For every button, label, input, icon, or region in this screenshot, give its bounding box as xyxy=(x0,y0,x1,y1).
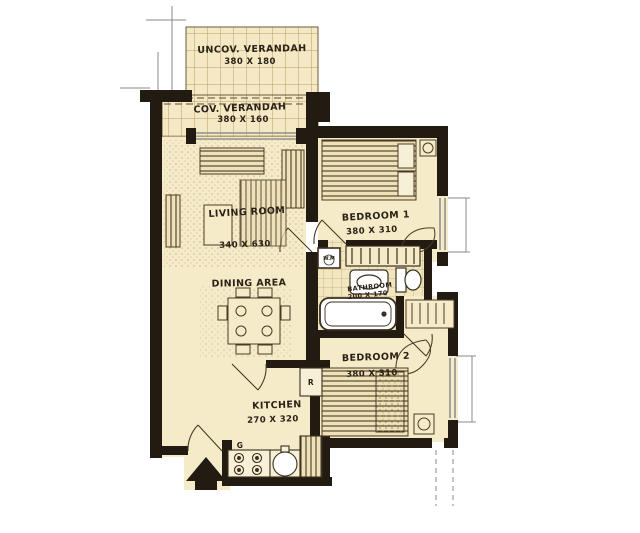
wall-entry-left xyxy=(150,446,188,455)
bedroom1-side-table xyxy=(420,140,436,156)
wall-kitchen-top xyxy=(266,360,330,368)
living-room-dims: 340 X 630 xyxy=(219,239,271,251)
bathtub xyxy=(320,298,396,330)
kitchen-label: KITCHEN xyxy=(252,399,302,412)
bedroom1-pillow xyxy=(398,144,414,168)
dining-chair xyxy=(258,288,272,297)
toilet xyxy=(396,268,421,292)
dining-chair xyxy=(236,288,250,297)
bedroom1-pillow xyxy=(398,172,414,196)
dining-furniture xyxy=(218,288,290,354)
wall-living-post-left xyxy=(186,128,196,144)
dining-chair xyxy=(258,345,272,354)
bedroom2-pillow-area xyxy=(376,372,404,432)
uncov-verandah-dims: 380 X 180 xyxy=(224,57,276,67)
dining-chair xyxy=(218,306,227,320)
wall-bedroom2-bottom-b xyxy=(444,438,458,448)
dining-area-label: DINING AREA xyxy=(211,277,286,289)
washing-machine-label: W.M xyxy=(323,256,335,262)
bedroom2-dims: 380 X 310 xyxy=(346,368,398,380)
kitchen-sink xyxy=(270,446,300,477)
wall-bathroom-bedroom2 xyxy=(310,330,404,338)
bedroom2-side-table xyxy=(414,414,434,434)
dining-chair xyxy=(236,345,250,354)
wall-cov-verandah-right xyxy=(306,92,330,122)
gas-cooker-label: G xyxy=(237,441,244,450)
tv-sideboard xyxy=(166,195,180,247)
wall-topleft-stub xyxy=(140,90,192,102)
floor-plan-drawing: UNCOV. VERANDAH 380 X 180 COV. VERANDAH … xyxy=(0,0,640,533)
wall-bedroom1-right-lower xyxy=(437,252,448,266)
gas-cooker xyxy=(228,450,270,477)
wall-central-upper xyxy=(306,122,318,222)
wall-left-exterior xyxy=(150,90,162,458)
bedroom2-wardrobe-rail xyxy=(406,300,454,328)
bedroom1-wardrobe-rail xyxy=(346,246,420,266)
wall-bedroom1-top xyxy=(318,126,448,138)
cov-verandah-dims: 380 X 160 xyxy=(217,115,269,125)
sofa xyxy=(200,148,264,174)
draining-board xyxy=(300,436,322,477)
dining-table xyxy=(228,298,280,344)
wall-kitchen-bottom xyxy=(222,477,332,486)
floor-plan-canvas: UNCOV. VERANDAH 380 X 180 COV. VERANDAH … xyxy=(0,0,640,533)
dining-chair xyxy=(281,306,290,320)
wall-bedroom1-right-upper xyxy=(437,126,448,196)
kitchen-dims: 270 X 320 xyxy=(247,414,299,426)
refrigerator-label: R xyxy=(308,378,314,387)
uncov-verandah-label: UNCOV. VERANDAH xyxy=(197,43,306,56)
